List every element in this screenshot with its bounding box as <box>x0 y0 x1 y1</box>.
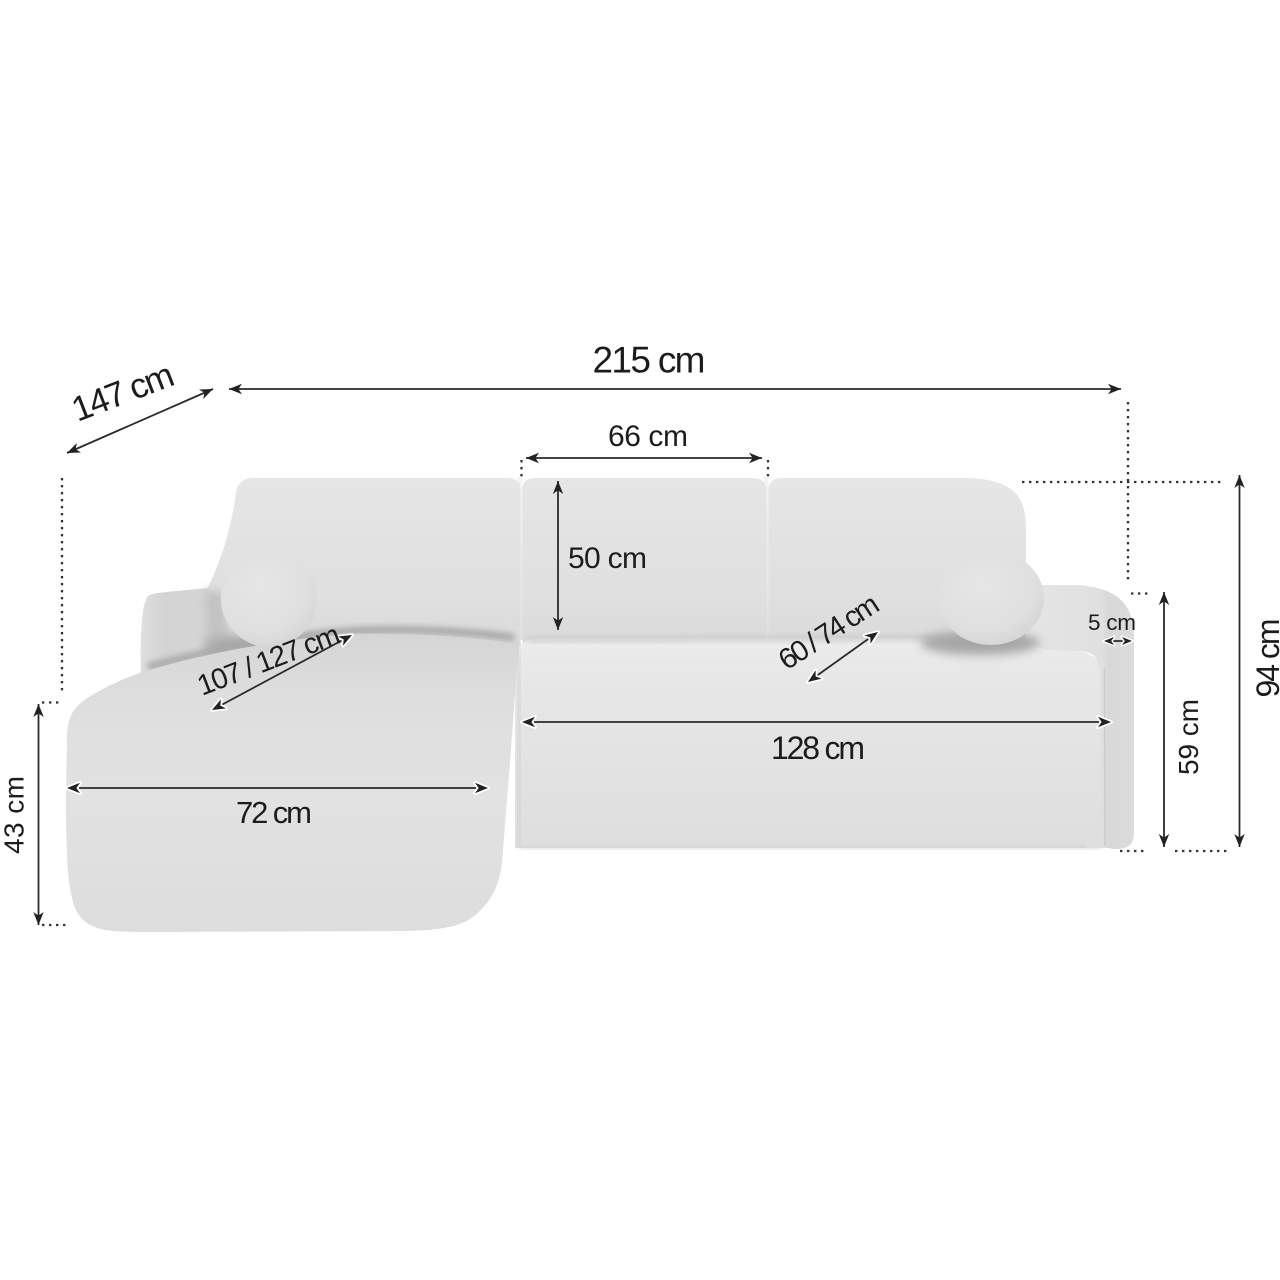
svg-text:5 cm: 5 cm <box>1088 610 1136 635</box>
svg-text:50 cm: 50 cm <box>568 542 647 575</box>
svg-text:66 cm: 66 cm <box>608 420 688 453</box>
svg-text:94 cm: 94 cm <box>1250 619 1280 698</box>
svg-text:215 cm: 215 cm <box>593 340 706 381</box>
svg-text:72 cm: 72 cm <box>236 795 312 830</box>
svg-text:128 cm: 128 cm <box>771 730 865 766</box>
svg-text:43 cm: 43 cm <box>0 776 30 854</box>
svg-text:59 cm: 59 cm <box>1173 699 1204 775</box>
